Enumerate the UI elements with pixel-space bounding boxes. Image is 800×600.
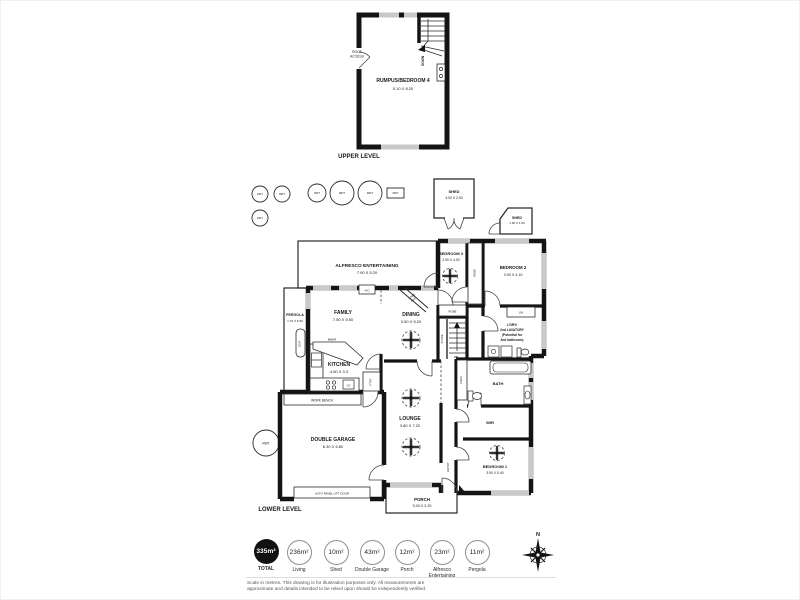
lin-label: LIN bbox=[519, 311, 523, 315]
lower-level-title: LOWER LEVEL bbox=[258, 507, 302, 513]
garage-door-label: AUTO PANEL LIFT DOOR bbox=[315, 492, 349, 496]
upper-level-title: UPPER LEVEL bbox=[338, 154, 380, 160]
room-dims-garage: 6.30 X 6.80 bbox=[323, 444, 344, 449]
combustion-heater: COMB HEAT bbox=[400, 288, 428, 312]
legend-item-living: 236m² Living bbox=[278, 540, 320, 574]
oven-label: OV bbox=[347, 383, 351, 387]
room-label-garage: DOUBLE GARAGE bbox=[311, 437, 356, 443]
room-label-shed-small: SHED bbox=[512, 216, 522, 220]
legend-circle-living: 236m² bbox=[287, 540, 312, 565]
legend-value: 11m² bbox=[470, 549, 485, 556]
entry-marker bbox=[459, 485, 465, 492]
legend-label: Pergola bbox=[456, 568, 498, 574]
room-dims-pergola: 1.70 X 6.60 bbox=[287, 319, 303, 323]
footer-divider bbox=[246, 577, 556, 578]
rwt-label: RWT bbox=[339, 191, 346, 195]
room-label-wir: WIR bbox=[486, 420, 494, 425]
shed-small: SHED 1.60 X 1.60 bbox=[489, 208, 532, 234]
legend-circle-total: 335m² bbox=[254, 539, 279, 564]
room-dims-alfresco: 7.90 X 5.20 bbox=[357, 270, 378, 275]
ac-label: A/C bbox=[364, 289, 370, 293]
linen-label: LINEN bbox=[459, 376, 463, 384]
legend-value: 335m² bbox=[256, 548, 275, 555]
stairs-down: DOWN bbox=[418, 15, 445, 66]
legend-circle-shed: 10m² bbox=[324, 540, 349, 565]
room-label-alfresco: ALFRESCO ENTERTAINING bbox=[335, 263, 399, 269]
laundry-label-1: L'DRY/ bbox=[507, 323, 518, 327]
rwt-label: RWT bbox=[257, 216, 263, 220]
seat-label: SEAT bbox=[299, 340, 302, 347]
bbar-label: B/BAR bbox=[328, 338, 336, 342]
fan-lounge-1 bbox=[402, 389, 420, 407]
room-dims-shed-large: 3.00 X 2.50 bbox=[445, 196, 462, 200]
legend-value: 10m² bbox=[328, 549, 343, 556]
fan-bedroom1 bbox=[490, 446, 505, 461]
legend-value: 23m² bbox=[434, 549, 449, 556]
store-label: STORE bbox=[440, 334, 444, 343]
rwt-label: RWT bbox=[367, 191, 374, 195]
roof-access-label-1: ROOF bbox=[352, 50, 362, 54]
lower-level: UP ROBE ROBE LIN LINEN STORE ENTRY SEAT … bbox=[258, 241, 546, 513]
legend-circle-porch: 12m² bbox=[395, 540, 420, 565]
stairs-down-label: DOWN bbox=[421, 55, 425, 66]
floorplan-page: DOWN ROOF ACCESS RUMPUS/BEDROOM 4 5.10 X… bbox=[0, 0, 800, 600]
room-dims-dining: 3.50 X 5.20 bbox=[401, 319, 422, 324]
legend-circle-pergola: 11m² bbox=[465, 540, 490, 565]
rwt-label: RWT bbox=[262, 442, 269, 446]
rainwater-tanks: RWT RWT RWT RWT RWT RWT RWT RWT bbox=[252, 181, 404, 456]
room-label-rumpus: RUMPUS/BEDROOM 4 bbox=[376, 78, 430, 84]
room-label-bath: BATH bbox=[493, 381, 504, 386]
room-label-dining: DINING bbox=[402, 312, 420, 318]
room-label-pergola: PERGOLA bbox=[286, 313, 304, 317]
work-bench-label: WORK BENCH bbox=[311, 399, 334, 403]
legend-value: 12m² bbox=[399, 549, 414, 556]
room-label-bedroom2: BEDROOM 2 bbox=[500, 265, 527, 270]
laundry-label-2: 2nd LAVATORY bbox=[500, 328, 525, 332]
room-label-family: FAMILY bbox=[334, 310, 353, 316]
fan-bedroom3 bbox=[443, 269, 458, 284]
floorplan-drawing: DOWN ROOF ACCESS RUMPUS/BEDROOM 4 5.10 X… bbox=[1, 1, 800, 600]
legend-label: Living bbox=[278, 568, 320, 574]
room-dims-family: 7.50 X 5.50 bbox=[333, 317, 354, 322]
room-dims-bedroom2: 3.90 X 4.10 bbox=[504, 273, 523, 277]
stairs-up: UP bbox=[447, 319, 466, 359]
room-dims-bedroom3: 2.90 X 4.00 bbox=[442, 258, 459, 262]
disclaimer-line-2: approximate and details intended to be r… bbox=[247, 587, 557, 593]
laundry-label-4: 2nd bathroom) bbox=[500, 338, 523, 342]
laundry-label-3: (Potential for bbox=[502, 333, 523, 337]
pantry-label: P'TRY bbox=[369, 378, 373, 386]
room-dims-bedroom1: 3.90 X 5.40 bbox=[486, 471, 503, 475]
room-dims-shed-small: 1.60 X 1.60 bbox=[509, 221, 525, 225]
entry-label: ENTRY bbox=[446, 462, 450, 472]
disclaimer-text: Scale in metres. This drawing is for ill… bbox=[247, 581, 557, 593]
upper-wall-unit bbox=[437, 64, 445, 81]
robe-label: ROBE bbox=[449, 310, 457, 314]
stairs-up-label: UP bbox=[454, 355, 458, 359]
room-label-porch: PORCH bbox=[414, 497, 430, 502]
fan-dining bbox=[402, 331, 420, 349]
room-label-kitchen: KITCHEN bbox=[328, 362, 351, 368]
compass-north-label: N bbox=[536, 532, 540, 538]
legend-value: 236m² bbox=[290, 549, 309, 556]
legend-circle-alfresco: 23m² bbox=[430, 540, 455, 565]
legend-item-pergola: 11m² Pergola bbox=[456, 540, 498, 574]
rwt-label: RWT bbox=[314, 191, 320, 195]
rwt-label: RWT bbox=[393, 191, 399, 195]
fan-lounge-2 bbox=[402, 438, 420, 456]
shed-large: SHED 3.00 X 2.50 bbox=[434, 179, 474, 229]
upper-level: DOWN ROOF ACCESS RUMPUS/BEDROOM 4 5.10 X… bbox=[338, 15, 447, 160]
legend-value: 43m² bbox=[364, 549, 379, 556]
room-dims-rumpus: 5.10 X 8.20 bbox=[393, 86, 414, 91]
room-dims-porch: 5.40 X 2.20 bbox=[413, 504, 432, 508]
room-label-bedroom3: BEDROOM 3 bbox=[439, 251, 464, 256]
rwt-label: RWT bbox=[279, 192, 285, 196]
room-label-bedroom1: BEDROOM 1 bbox=[483, 464, 508, 469]
rwt-label: RWT bbox=[257, 192, 263, 196]
room-label-shed-large: SHED bbox=[448, 189, 459, 194]
compass-rose: N bbox=[522, 532, 554, 572]
room-dims-kitchen: 4.60 X 3.3 bbox=[330, 369, 349, 374]
roof-access-label-2: ACCESS bbox=[350, 55, 365, 59]
robe-label: ROBE bbox=[473, 269, 477, 277]
room-label-lounge: LOUNGE bbox=[399, 416, 421, 422]
legend-circle-garage: 43m² bbox=[360, 540, 385, 565]
laundry-fixtures bbox=[488, 346, 529, 357]
room-dims-lounge: 3.80 X 7.20 bbox=[400, 423, 421, 428]
